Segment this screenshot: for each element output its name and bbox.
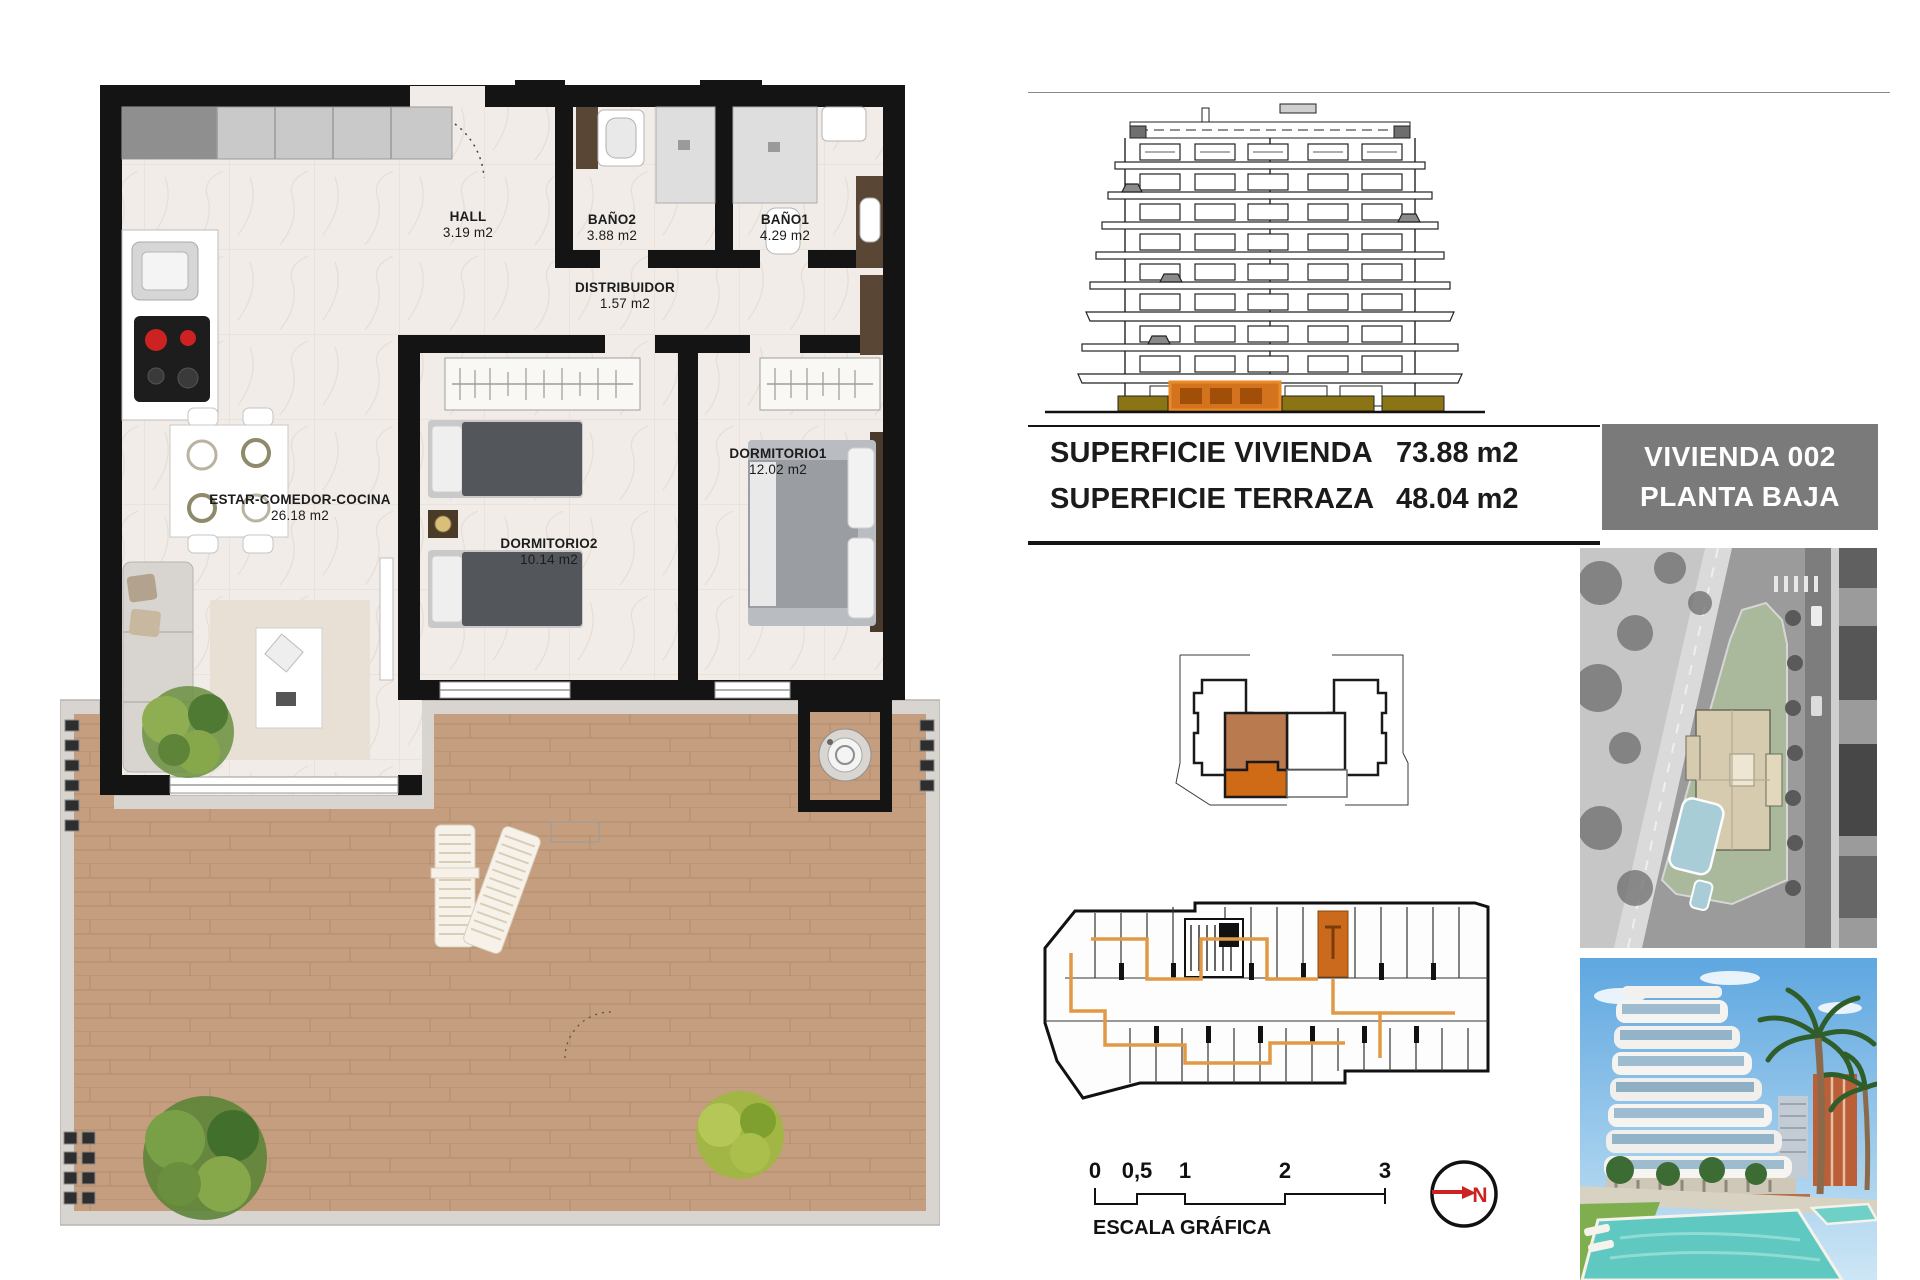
room-label-dormitorio2: DORMITORIO2 10.14 m2: [500, 536, 597, 568]
room-label-bano1: BAÑO1 4.29 m2: [760, 212, 810, 244]
room-name: BAÑO2: [587, 212, 637, 228]
room-label-bano2: BAÑO2 3.88 m2: [587, 212, 637, 244]
room-area: 12.02 m2: [729, 462, 826, 478]
room-name: DORMITORIO2: [500, 536, 597, 552]
outdoor-shower: [819, 729, 871, 781]
north-label: N: [1472, 1184, 1487, 1207]
room-area: 1.57 m2: [575, 296, 675, 312]
scale-bar-label: ESCALA GRÁFICA: [1093, 1216, 1271, 1239]
floor-plan-drawing: [60, 80, 940, 1230]
room-area: 4.29 m2: [760, 228, 810, 244]
surface-label: SUPERFICIE VIVIENDA: [1050, 437, 1373, 470]
table-row: SUPERFICIE VIVIENDA 73.88 m2: [1028, 437, 1600, 481]
room-label-hall: HALL 3.19 m2: [443, 209, 493, 241]
room-name: DORMITORIO1: [729, 446, 826, 462]
key-plan-drawing: [1150, 635, 1470, 850]
room-name: DISTRIBUIDOR: [575, 280, 675, 296]
room-area: 10.14 m2: [500, 552, 597, 568]
garage-highlighted-stall: [1318, 911, 1348, 977]
room-name: HALL: [443, 209, 493, 225]
building-elevation-drawing: [1030, 96, 1500, 426]
scale-tick: 2: [1279, 1160, 1291, 1183]
room-name: BAÑO1: [760, 212, 810, 228]
table-row: SUPERFICIE TERRAZA 48.04 m2: [1028, 483, 1600, 527]
plan-sheet: { "floor_plan": { "rooms": [ {"id": "hal…: [0, 0, 1920, 1280]
scale-bar: 0 0,5 1 2 3 ESCALA GRÁFICA: [1085, 1160, 1425, 1245]
room-area: 3.88 m2: [587, 228, 637, 244]
room-label-dormitorio1: DORMITORIO1 12.02 m2: [729, 446, 826, 478]
scale-tick: 0,5: [1122, 1160, 1153, 1183]
room-name: ESTAR-COMEDOR-COCINA: [209, 492, 391, 508]
aerial-site-photo: [1580, 548, 1877, 948]
surface-value: 73.88 m2: [1396, 437, 1519, 470]
unit-number: VIVIENDA 002: [1644, 437, 1836, 477]
scale-tick: 1: [1179, 1160, 1191, 1183]
dining-table: [170, 408, 288, 553]
surface-value: 48.04 m2: [1396, 483, 1519, 516]
room-label-distribuidor: DISTRIBUIDOR 1.57 m2: [575, 280, 675, 312]
room-label-estar: ESTAR-COMEDOR-COCINA 26.18 m2: [209, 492, 391, 524]
surface-summary-table: SUPERFICIE VIVIENDA 73.88 m2 SUPERFICIE …: [1028, 425, 1600, 545]
garage-plan-drawing: [1035, 893, 1500, 1133]
unit-badge: VIVIENDA 002 PLANTA BAJA: [1602, 424, 1878, 530]
separator-line: [1028, 92, 1890, 93]
unit-floor: PLANTA BAJA: [1640, 477, 1840, 517]
surface-label: SUPERFICIE TERRAZA: [1050, 483, 1374, 516]
room-area: 3.19 m2: [443, 225, 493, 241]
tv-unit: [380, 558, 393, 680]
north-arrow: N: [1418, 1152, 1513, 1242]
stair-core: [1185, 919, 1243, 977]
coffee-table-rug: [210, 600, 370, 760]
scale-tick: 0: [1089, 1160, 1101, 1183]
room-area: 26.18 m2: [209, 508, 391, 524]
building-render-photo: [1580, 958, 1877, 1280]
scale-tick: 3: [1379, 1160, 1391, 1183]
